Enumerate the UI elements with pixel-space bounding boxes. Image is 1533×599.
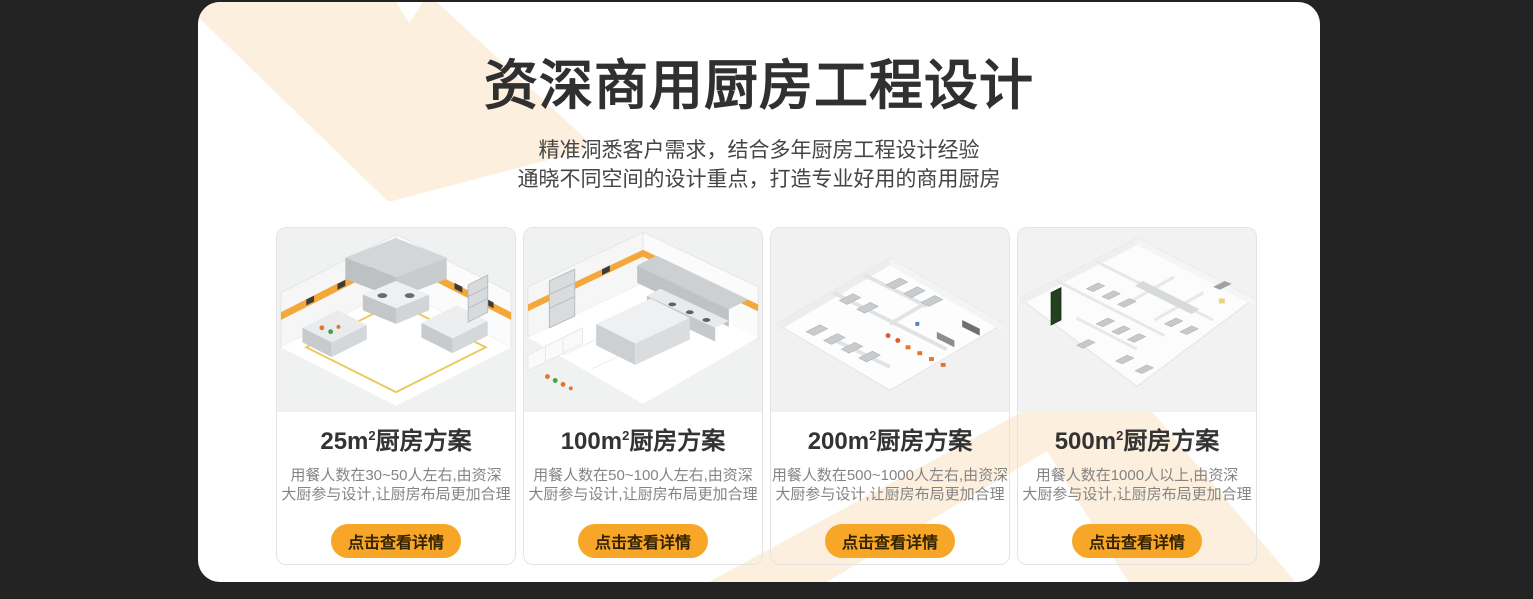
kitchen-render-25m2-illustration [277, 228, 515, 412]
kitchen-render-200m2-image [771, 228, 1009, 412]
plan-card-description: 用餐人数在500~1000人左右,由资深 大厨参与设计,让厨房布局更加合理 [772, 466, 1008, 504]
plan-title-suffix: 厨房方案 [629, 428, 725, 455]
kitchen-render-500m2-illustration [1018, 228, 1256, 412]
plan-card-25m2: 25m2厨房方案 用餐人数在30~50人左右,由资深 大厨参与设计,让厨房布局更… [276, 227, 516, 565]
plan-desc-line-1: 用餐人数在50~100人左右,由资深 [528, 466, 757, 485]
page-title: 资深商用厨房工程设计 [198, 58, 1320, 115]
plan-desc-line-1: 用餐人数在30~50人左右,由资深 [281, 466, 510, 485]
plan-card-100m2: 100m2厨房方案 用餐人数在50~100人左右,由资深 大厨参与设计,让厨房布… [523, 227, 763, 565]
plan-card-description: 用餐人数在30~50人左右,由资深 大厨参与设计,让厨房布局更加合理 [281, 466, 510, 504]
plan-card-title: 500m2厨房方案 [1055, 429, 1220, 455]
subtitle-line-1: 精准洞悉客户需求，结合多年厨房工程设计经验 [198, 136, 1320, 165]
plan-card-row: 25m2厨房方案 用餐人数在30~50人左右,由资深 大厨参与设计,让厨房布局更… [276, 227, 1257, 565]
kitchen-render-200m2-illustration [771, 228, 1009, 412]
view-details-button-100m2[interactable]: 点击查看详情 [578, 524, 708, 558]
plan-card-title: 25m2厨房方案 [320, 429, 471, 455]
kitchen-render-100m2-illustration [524, 228, 762, 412]
plan-card-description: 用餐人数在50~100人左右,由资深 大厨参与设计,让厨房布局更加合理 [528, 466, 757, 504]
subtitle-line-2: 通晓不同空间的设计重点，打造专业好用的商用厨房 [198, 165, 1320, 194]
plan-card-500m2: 500m2厨房方案 用餐人数在1000人以上,由资深 大厨参与设计,让厨房布局更… [1017, 227, 1257, 565]
plan-area-value: 200m [808, 428, 869, 455]
plan-card-title: 200m2厨房方案 [808, 429, 973, 455]
plan-title-suffix: 厨房方案 [1123, 428, 1219, 455]
kitchen-render-25m2-image [277, 228, 515, 412]
plan-desc-line-2: 大厨参与设计,让厨房布局更加合理 [281, 485, 510, 504]
plan-area-value: 100m [561, 428, 622, 455]
kitchen-render-500m2-image [1018, 228, 1256, 412]
plan-card-title: 100m2厨房方案 [561, 429, 726, 455]
plan-card-description: 用餐人数在1000人以上,由资深 大厨参与设计,让厨房布局更加合理 [1022, 466, 1251, 504]
view-details-button-25m2[interactable]: 点击查看详情 [331, 524, 461, 558]
plan-title-suffix: 厨房方案 [876, 428, 972, 455]
plan-desc-line-2: 大厨参与设计,让厨房布局更加合理 [528, 485, 757, 504]
plan-desc-line-2: 大厨参与设计,让厨房布局更加合理 [772, 485, 1008, 504]
plan-desc-line-1: 用餐人数在1000人以上,由资深 [1022, 466, 1251, 485]
plan-area-value: 500m [1055, 428, 1116, 455]
plan-desc-line-2: 大厨参与设计,让厨房布局更加合理 [1022, 485, 1251, 504]
section-header: 资深商用厨房工程设计 精准洞悉客户需求，结合多年厨房工程设计经验 通晓不同空间的… [198, 58, 1320, 194]
plan-title-suffix: 厨房方案 [376, 428, 472, 455]
plan-area-sup: 2 [368, 428, 375, 443]
content-panel: 资深商用厨房工程设计 精准洞悉客户需求，结合多年厨房工程设计经验 通晓不同空间的… [198, 2, 1320, 582]
plan-card-200m2: 200m2厨房方案 用餐人数在500~1000人左右,由资深 大厨参与设计,让厨… [770, 227, 1010, 565]
plan-desc-line-1: 用餐人数在500~1000人左右,由资深 [772, 466, 1008, 485]
plan-area-value: 25m [320, 428, 368, 455]
view-details-button-200m2[interactable]: 点击查看详情 [825, 524, 955, 558]
view-details-button-500m2[interactable]: 点击查看详情 [1072, 524, 1202, 558]
subtitle: 精准洞悉客户需求，结合多年厨房工程设计经验 通晓不同空间的设计重点，打造专业好用… [198, 136, 1320, 194]
page-background: { "theme": { "page_background": "#232323… [0, 0, 1533, 599]
kitchen-render-100m2-image [524, 228, 762, 412]
